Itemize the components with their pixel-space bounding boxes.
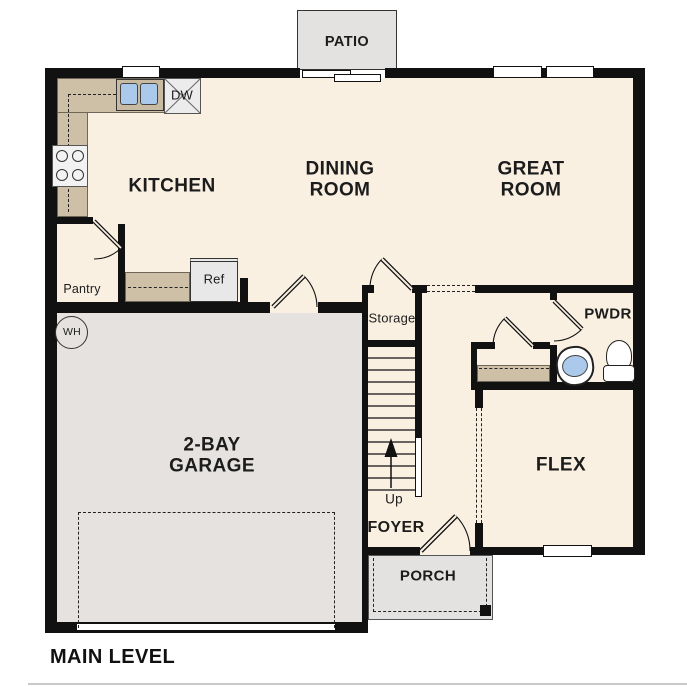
- plan-title: MAIN LEVEL: [50, 646, 175, 669]
- wall-segment: [471, 382, 645, 390]
- wall-segment: [362, 285, 368, 633]
- sink-basin: [140, 83, 158, 105]
- label-wh: WH: [63, 327, 81, 339]
- burner: [56, 150, 68, 162]
- wall-segment: [45, 68, 125, 78]
- window: [543, 545, 592, 557]
- burner: [72, 169, 84, 181]
- label-up: Up: [385, 491, 403, 506]
- label-dw: DW: [171, 89, 193, 104]
- wall-segment: [475, 523, 483, 547]
- burner: [56, 169, 68, 181]
- window: [493, 66, 542, 78]
- wall-segment: [362, 285, 374, 293]
- wall-segment: [470, 547, 543, 555]
- window: [122, 66, 160, 78]
- wall-segment: [45, 217, 93, 224]
- wall-segment: [633, 68, 645, 555]
- cased-opening: [476, 408, 477, 523]
- wall-segment: [592, 547, 645, 555]
- room-label-kitchen: KITCHEN: [128, 175, 215, 196]
- wall-segment: [240, 278, 248, 302]
- room-label-garage: 2-BAY GARAGE: [152, 435, 272, 478]
- wall-segment: [475, 285, 645, 293]
- cased-opening: [481, 408, 482, 523]
- wall-segment: [475, 390, 483, 408]
- wall-segment: [45, 302, 270, 313]
- wall-segment: [362, 547, 420, 555]
- room-label-foyer: FOYER: [367, 519, 424, 537]
- area-label-patio: PATIO: [325, 34, 369, 50]
- burner: [72, 150, 84, 162]
- stair-railing: [415, 437, 422, 497]
- wall-segment: [45, 622, 77, 633]
- toilet-tank: [603, 365, 635, 382]
- page-edge-line: [28, 683, 687, 685]
- sink-basin: [120, 83, 138, 105]
- floor-plan: KITCHEN DINING ROOM GREAT ROOM 2-BAY GAR…: [0, 0, 687, 687]
- wall-segment: [415, 293, 422, 437]
- sliding-door-panel: [334, 74, 381, 82]
- wall-segment: [118, 224, 125, 302]
- stove: [52, 145, 88, 187]
- wall-segment: [158, 68, 300, 78]
- cabinet-dash-line: [68, 94, 116, 95]
- garage-door-path: [78, 512, 335, 628]
- wall-segment: [550, 293, 557, 300]
- wall-segment: [385, 68, 493, 78]
- label-ref: Ref: [204, 273, 225, 288]
- porch-post: [480, 605, 491, 616]
- room-label-great: GREAT ROOM: [476, 159, 586, 202]
- area-label-porch: PORCH: [400, 569, 456, 586]
- shelf-dash-line: [479, 368, 549, 369]
- room-label-flex: FLEX: [536, 454, 586, 475]
- label-storage: Storage: [369, 312, 416, 327]
- cased-opening: [427, 291, 475, 292]
- kitchen-sink: [116, 79, 164, 111]
- cased-opening: [427, 285, 475, 286]
- room-label-pwdr: PWDR: [584, 307, 631, 324]
- label-pantry: Pantry: [63, 282, 100, 296]
- wall-segment: [412, 285, 422, 293]
- wall-segment: [318, 302, 368, 313]
- window: [546, 66, 594, 78]
- wall-segment: [362, 340, 422, 347]
- cabinet-dash-line: [128, 287, 188, 288]
- room-label-dining: DINING ROOM: [285, 159, 395, 202]
- wall-segment: [533, 342, 550, 349]
